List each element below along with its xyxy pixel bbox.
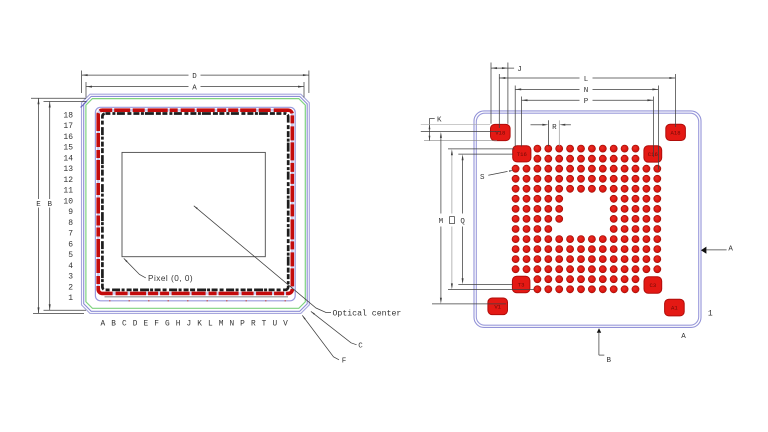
svg-text:2: 2 (68, 283, 73, 292)
svg-text:6: 6 (68, 240, 73, 249)
svg-text:T16: T16 (517, 151, 527, 158)
svg-text:B: B (607, 357, 612, 365)
svg-text:16: 16 (63, 133, 73, 142)
svg-text:B: B (111, 321, 116, 329)
svg-text:15: 15 (63, 144, 73, 153)
svg-text:B: B (47, 201, 52, 209)
svg-text:5: 5 (68, 251, 73, 260)
svg-text:C: C (122, 321, 127, 329)
svg-text:V1: V1 (494, 303, 501, 310)
svg-text:R: R (251, 321, 256, 329)
svg-text:J: J (517, 66, 522, 74)
svg-text:J: J (186, 321, 191, 329)
svg-text:C16: C16 (648, 151, 658, 158)
svg-text:N: N (584, 87, 589, 95)
svg-text:K: K (197, 321, 202, 329)
svg-text:C: C (358, 343, 363, 351)
svg-text:H: H (176, 321, 181, 329)
svg-text:P: P (584, 98, 589, 106)
svg-text:4: 4 (68, 262, 73, 271)
svg-text:8: 8 (68, 219, 73, 228)
svg-text:17: 17 (63, 122, 73, 131)
svg-text:M: M (219, 321, 224, 329)
svg-text:D: D (192, 73, 197, 81)
svg-text:F: F (154, 321, 159, 329)
svg-text:K: K (437, 116, 442, 124)
svg-text:3: 3 (68, 273, 73, 282)
svg-text:L: L (584, 76, 589, 84)
svg-text:1: 1 (708, 310, 713, 319)
svg-text:14: 14 (63, 154, 73, 163)
svg-text:Q: Q (460, 218, 465, 226)
svg-text:A1: A1 (671, 305, 678, 312)
svg-text:E: E (144, 321, 149, 329)
svg-text:R: R (552, 124, 557, 132)
svg-text:A18: A18 (671, 129, 681, 136)
svg-text:18: 18 (63, 111, 73, 120)
svg-text:D: D (133, 321, 138, 329)
svg-text:A: A (192, 84, 197, 92)
svg-text:S: S (480, 174, 485, 182)
svg-text:T: T (262, 321, 267, 329)
svg-text:V18: V18 (495, 130, 505, 137)
svg-text:P: P (240, 321, 245, 329)
svg-text:F: F (342, 358, 347, 366)
svg-text:Optical center: Optical center (333, 308, 402, 318)
svg-text:M: M (439, 218, 444, 226)
svg-text:A: A (681, 333, 686, 341)
svg-text:U: U (272, 321, 277, 329)
svg-text:10: 10 (63, 197, 73, 206)
svg-text:12: 12 (63, 176, 73, 185)
svg-text:N: N (229, 321, 234, 329)
svg-text:1: 1 (68, 294, 73, 303)
svg-text:C3: C3 (650, 282, 657, 289)
svg-text:V: V (283, 321, 288, 329)
svg-text:9: 9 (68, 208, 73, 217)
svg-text:L: L (208, 321, 213, 329)
svg-text:13: 13 (63, 165, 73, 174)
svg-text:A: A (101, 321, 106, 329)
svg-text:E: E (36, 201, 41, 209)
svg-text:11: 11 (63, 187, 73, 196)
svg-text:A: A (728, 246, 733, 254)
svg-text:T3: T3 (518, 282, 525, 289)
svg-text:Pixel (0, 0): Pixel (0, 0) (148, 274, 193, 283)
svg-text:G: G (165, 321, 170, 329)
svg-text:7: 7 (68, 230, 73, 239)
